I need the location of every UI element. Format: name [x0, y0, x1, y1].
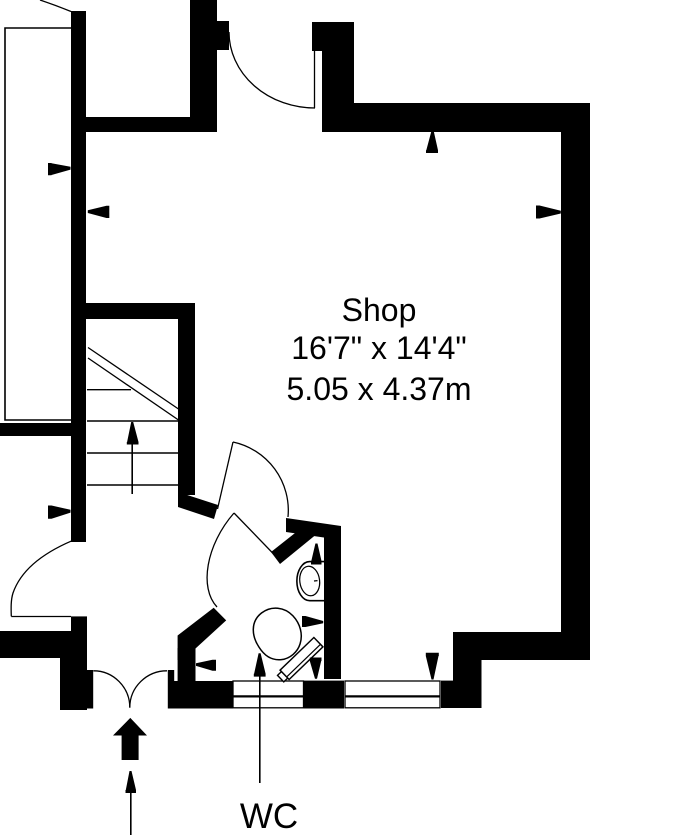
svg-text:16'7" x 14'4": 16'7" x 14'4"	[291, 330, 467, 366]
svg-text:5.05 x 4.37m: 5.05 x 4.37m	[287, 371, 472, 407]
svg-text:Shop: Shop	[342, 292, 417, 328]
svg-text:WC: WC	[240, 797, 298, 835]
